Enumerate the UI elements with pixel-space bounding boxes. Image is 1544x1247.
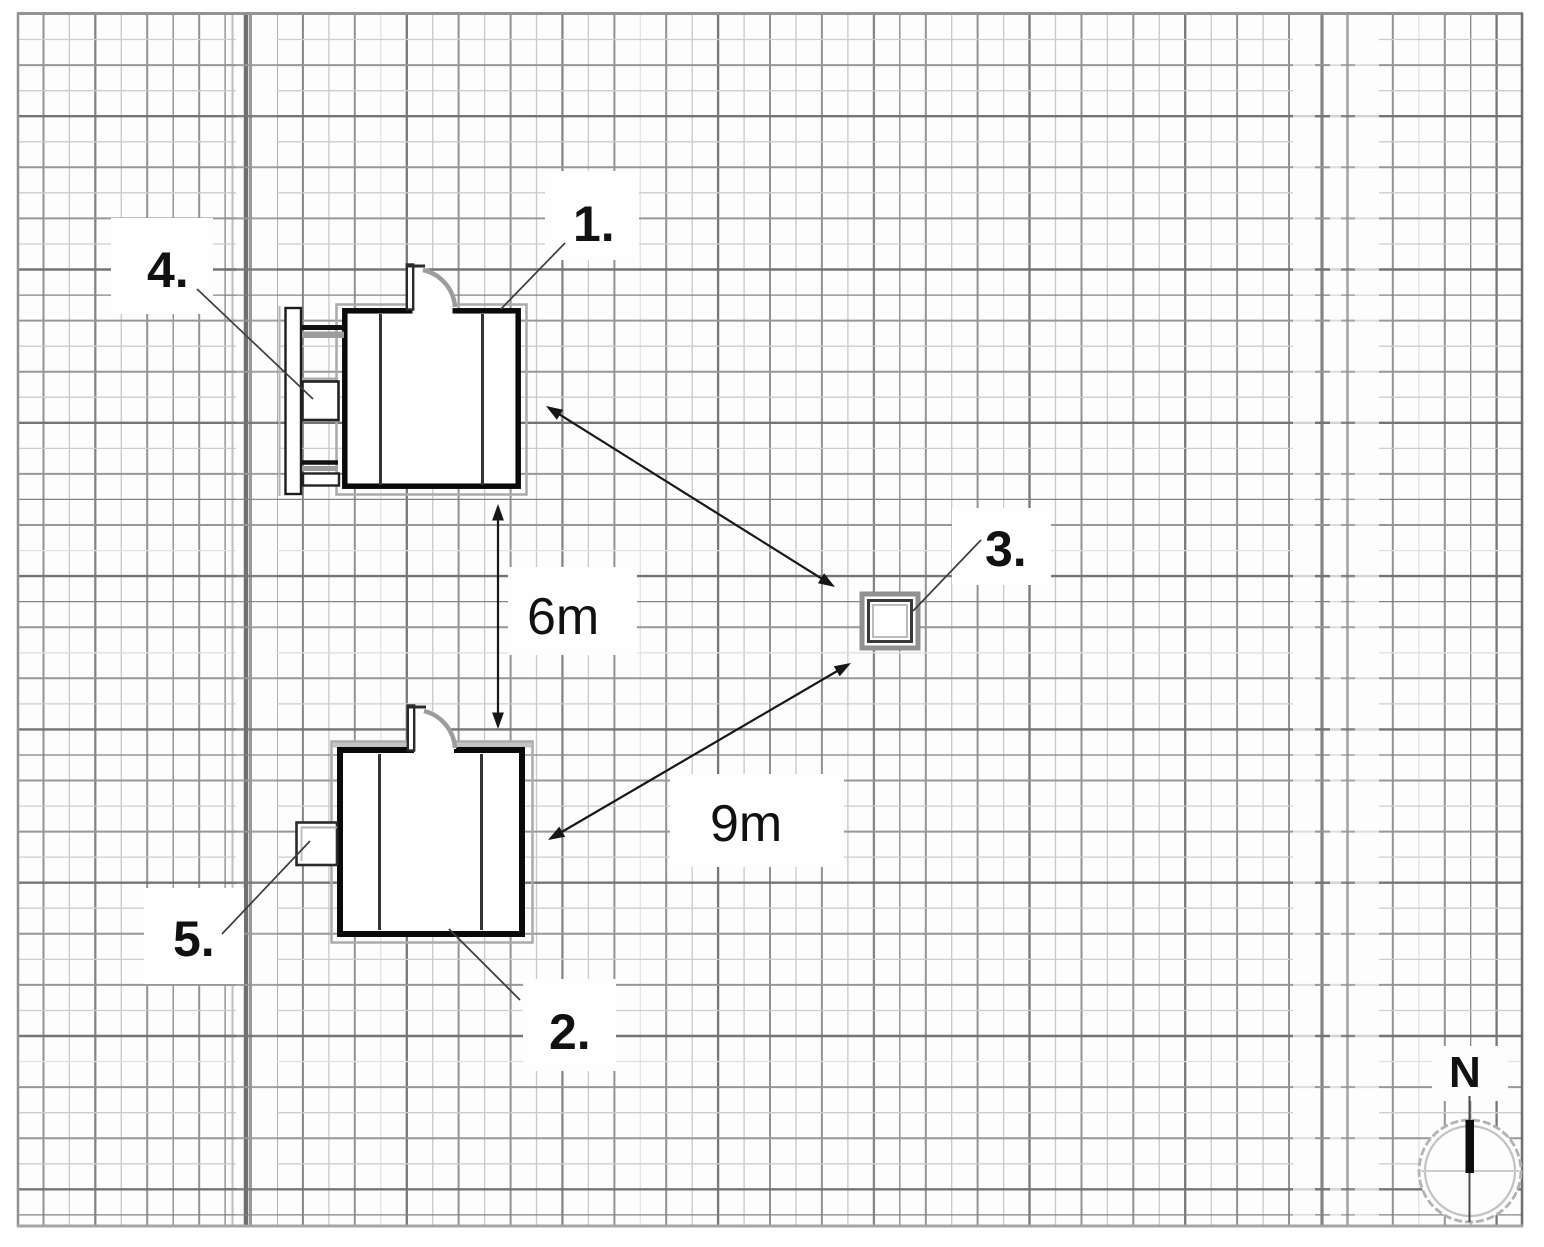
svg-text:3.: 3. (985, 521, 1027, 577)
svg-text:9m: 9m (710, 795, 782, 853)
svg-text:4.: 4. (147, 242, 189, 298)
svg-text:1.: 1. (573, 196, 615, 252)
svg-text:2.: 2. (549, 1004, 591, 1060)
svg-text:N: N (1449, 1048, 1481, 1097)
svg-text:5.: 5. (173, 911, 215, 967)
svg-text:6m: 6m (527, 588, 599, 646)
